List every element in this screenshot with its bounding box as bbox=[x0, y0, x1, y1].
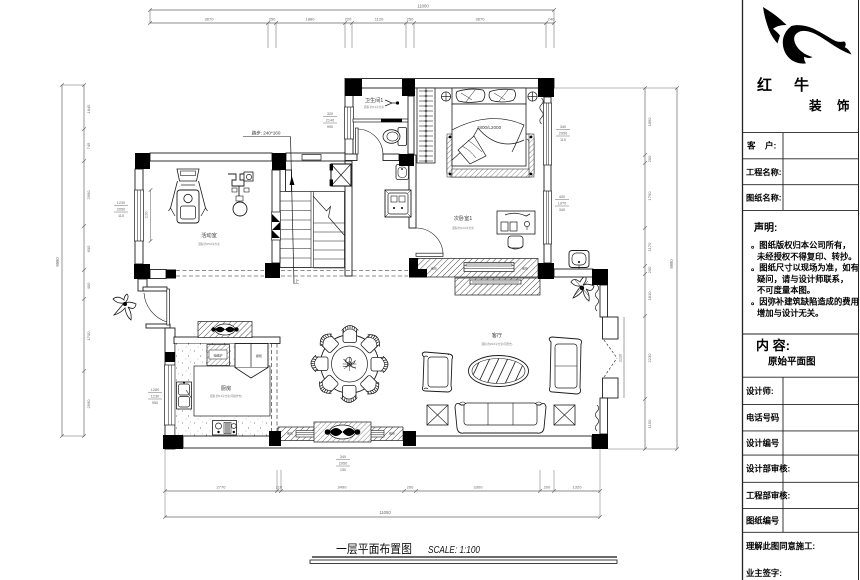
svg-text:原始平面图: 原始平面图 bbox=[768, 356, 816, 368]
svg-text:。图纸版权归本公司所有，: 。图纸版权归本公司所有， bbox=[751, 240, 851, 250]
svg-text:面积:约4.2平方米: 面积:约4.2平方米 bbox=[364, 105, 384, 109]
svg-text:200: 200 bbox=[647, 155, 652, 162]
svg-text:220: 220 bbox=[345, 17, 352, 22]
svg-text:200: 200 bbox=[544, 485, 551, 490]
svg-text:设计编号: 设计编号 bbox=[746, 438, 779, 448]
svg-text:散热: 散热 bbox=[389, 431, 395, 436]
svg-text:客厅: 客厅 bbox=[492, 331, 502, 339]
svg-text:1230: 1230 bbox=[117, 201, 125, 205]
svg-text:990: 990 bbox=[327, 125, 333, 129]
svg-text:户:: 户: bbox=[764, 141, 777, 151]
svg-text:工程部审核:: 工程部审核: bbox=[746, 490, 790, 500]
svg-text:110: 110 bbox=[560, 138, 566, 142]
svg-text:面积:约15.8平方米: 面积:约15.8平方米 bbox=[198, 242, 220, 246]
svg-text:11000: 11000 bbox=[417, 4, 429, 9]
svg-text:340: 340 bbox=[560, 125, 566, 129]
svg-text:装: 装 bbox=[808, 98, 822, 113]
svg-text:250: 250 bbox=[407, 17, 414, 22]
svg-text:2950: 2950 bbox=[559, 132, 567, 136]
svg-text:9990: 9990 bbox=[669, 259, 674, 269]
svg-text:卫生间1: 卫生间1 bbox=[365, 96, 384, 104]
svg-text:声明:: 声明: bbox=[753, 221, 777, 234]
svg-text:图纸名称:: 图纸名称: bbox=[746, 193, 781, 203]
svg-text:11050: 11050 bbox=[379, 510, 391, 515]
svg-text:600: 600 bbox=[86, 245, 91, 252]
svg-text:2990: 2990 bbox=[86, 399, 91, 409]
svg-text:面积:约23.6平方米(带阳台): 面积:约23.6平方米(带阳台) bbox=[482, 342, 513, 346]
svg-text:1890: 1890 bbox=[647, 117, 652, 127]
svg-text:1880: 1880 bbox=[306, 17, 316, 22]
svg-text:不可度量本图。: 不可度量本图。 bbox=[757, 285, 815, 295]
svg-text:饰: 饰 bbox=[836, 98, 850, 113]
svg-text:3670: 3670 bbox=[205, 17, 215, 22]
svg-text:设计部审核:: 设计部审核: bbox=[746, 464, 790, 474]
svg-text:2990: 2990 bbox=[86, 190, 91, 200]
svg-text:400: 400 bbox=[559, 195, 565, 199]
svg-text:1120: 1120 bbox=[375, 17, 384, 22]
svg-text:次卧室1: 次卧室1 bbox=[454, 214, 473, 222]
svg-text:2950: 2950 bbox=[339, 462, 347, 466]
svg-text:散热: 散热 bbox=[522, 266, 528, 271]
svg-text:厨房: 厨房 bbox=[221, 384, 231, 392]
svg-text:340: 340 bbox=[559, 208, 565, 212]
svg-text:红: 红 bbox=[757, 76, 772, 94]
svg-text:上: 上 bbox=[295, 278, 300, 284]
svg-text:1280: 1280 bbox=[151, 388, 159, 392]
svg-text:1790: 1790 bbox=[647, 191, 652, 201]
svg-text:2770: 2770 bbox=[217, 485, 227, 490]
svg-text:3670: 3670 bbox=[476, 17, 486, 22]
svg-text:1150: 1150 bbox=[647, 419, 652, 428]
svg-text:电话号码: 电话号码 bbox=[746, 413, 779, 423]
svg-text:745: 745 bbox=[86, 142, 91, 149]
svg-text:110: 110 bbox=[118, 214, 124, 218]
svg-text:1230: 1230 bbox=[151, 395, 159, 399]
svg-text:散热: 散热 bbox=[287, 431, 293, 436]
svg-text:电磁炉: 电磁炉 bbox=[213, 353, 222, 358]
svg-text:SCALE: 1:100: SCALE: 1:100 bbox=[428, 544, 480, 556]
svg-text:橱柜: 橱柜 bbox=[256, 353, 262, 358]
svg-text:。因弥补建筑缺陷造成的费用: 。因弥补建筑缺陷造成的费用 bbox=[751, 297, 859, 307]
svg-text:2230: 2230 bbox=[647, 353, 652, 363]
svg-text:面积:约14.6平方米: 面积:约14.6平方米 bbox=[452, 226, 474, 230]
svg-text:2140: 2140 bbox=[326, 119, 334, 123]
svg-text:一层平面布置图: 一层平面布置图 bbox=[336, 542, 412, 556]
svg-text:客: 客 bbox=[746, 141, 756, 151]
svg-text:踏步: 240*160: 踏步: 240*160 bbox=[252, 130, 281, 137]
svg-text:业主签字:: 业主签字: bbox=[746, 568, 782, 578]
svg-text:活动室: 活动室 bbox=[201, 231, 217, 239]
svg-text:3300: 3300 bbox=[474, 485, 484, 490]
svg-text:未经授权不得复印、转抄。: 未经授权不得复印、转抄。 bbox=[756, 251, 857, 261]
svg-text:950: 950 bbox=[152, 401, 158, 405]
svg-text:设计师:: 设计师: bbox=[746, 386, 774, 396]
svg-text:理解此图同意施工:: 理解此图同意施工: bbox=[746, 541, 815, 551]
svg-text:1970: 1970 bbox=[558, 202, 566, 206]
svg-text:。图纸尺寸以现场为准，如有: 。图纸尺寸以现场为准，如有 bbox=[751, 263, 859, 273]
svg-text:150: 150 bbox=[340, 468, 346, 472]
svg-text:内 容:: 内 容: bbox=[756, 338, 790, 353]
svg-text:3490: 3490 bbox=[338, 485, 348, 490]
svg-text:1845: 1845 bbox=[86, 104, 91, 114]
svg-text:工程名称:: 工程名称: bbox=[746, 167, 781, 177]
svg-text:2230: 2230 bbox=[619, 354, 623, 362]
svg-text:牛: 牛 bbox=[794, 76, 809, 94]
svg-text:散热: 散热 bbox=[431, 266, 437, 271]
svg-text:1170: 1170 bbox=[647, 242, 652, 251]
svg-text:320: 320 bbox=[327, 112, 333, 116]
svg-text:200: 200 bbox=[647, 266, 652, 273]
svg-text:200: 200 bbox=[407, 485, 414, 490]
svg-text:面积:约9.3平方米(带操作台): 面积:约9.3平方米(带操作台) bbox=[210, 394, 242, 398]
svg-text:疑问，请与设计师联系，: 疑问，请与设计师联系， bbox=[757, 274, 848, 284]
svg-text:1810: 1810 bbox=[647, 291, 652, 301]
svg-text:图纸编号: 图纸编号 bbox=[746, 515, 779, 525]
svg-text:9990: 9990 bbox=[55, 257, 60, 267]
svg-text:1800/L2000: 1800/L2000 bbox=[477, 125, 502, 130]
svg-text:1190: 1190 bbox=[145, 211, 149, 218]
svg-text:340: 340 bbox=[340, 455, 346, 459]
svg-text:1320: 1320 bbox=[573, 485, 583, 490]
svg-text:400: 400 bbox=[86, 282, 91, 289]
svg-text:增加与设计无关。: 增加与设计无关。 bbox=[757, 308, 823, 318]
svg-text:2050: 2050 bbox=[117, 208, 125, 212]
svg-text:1700: 1700 bbox=[86, 331, 91, 341]
svg-text:250: 250 bbox=[269, 17, 276, 22]
